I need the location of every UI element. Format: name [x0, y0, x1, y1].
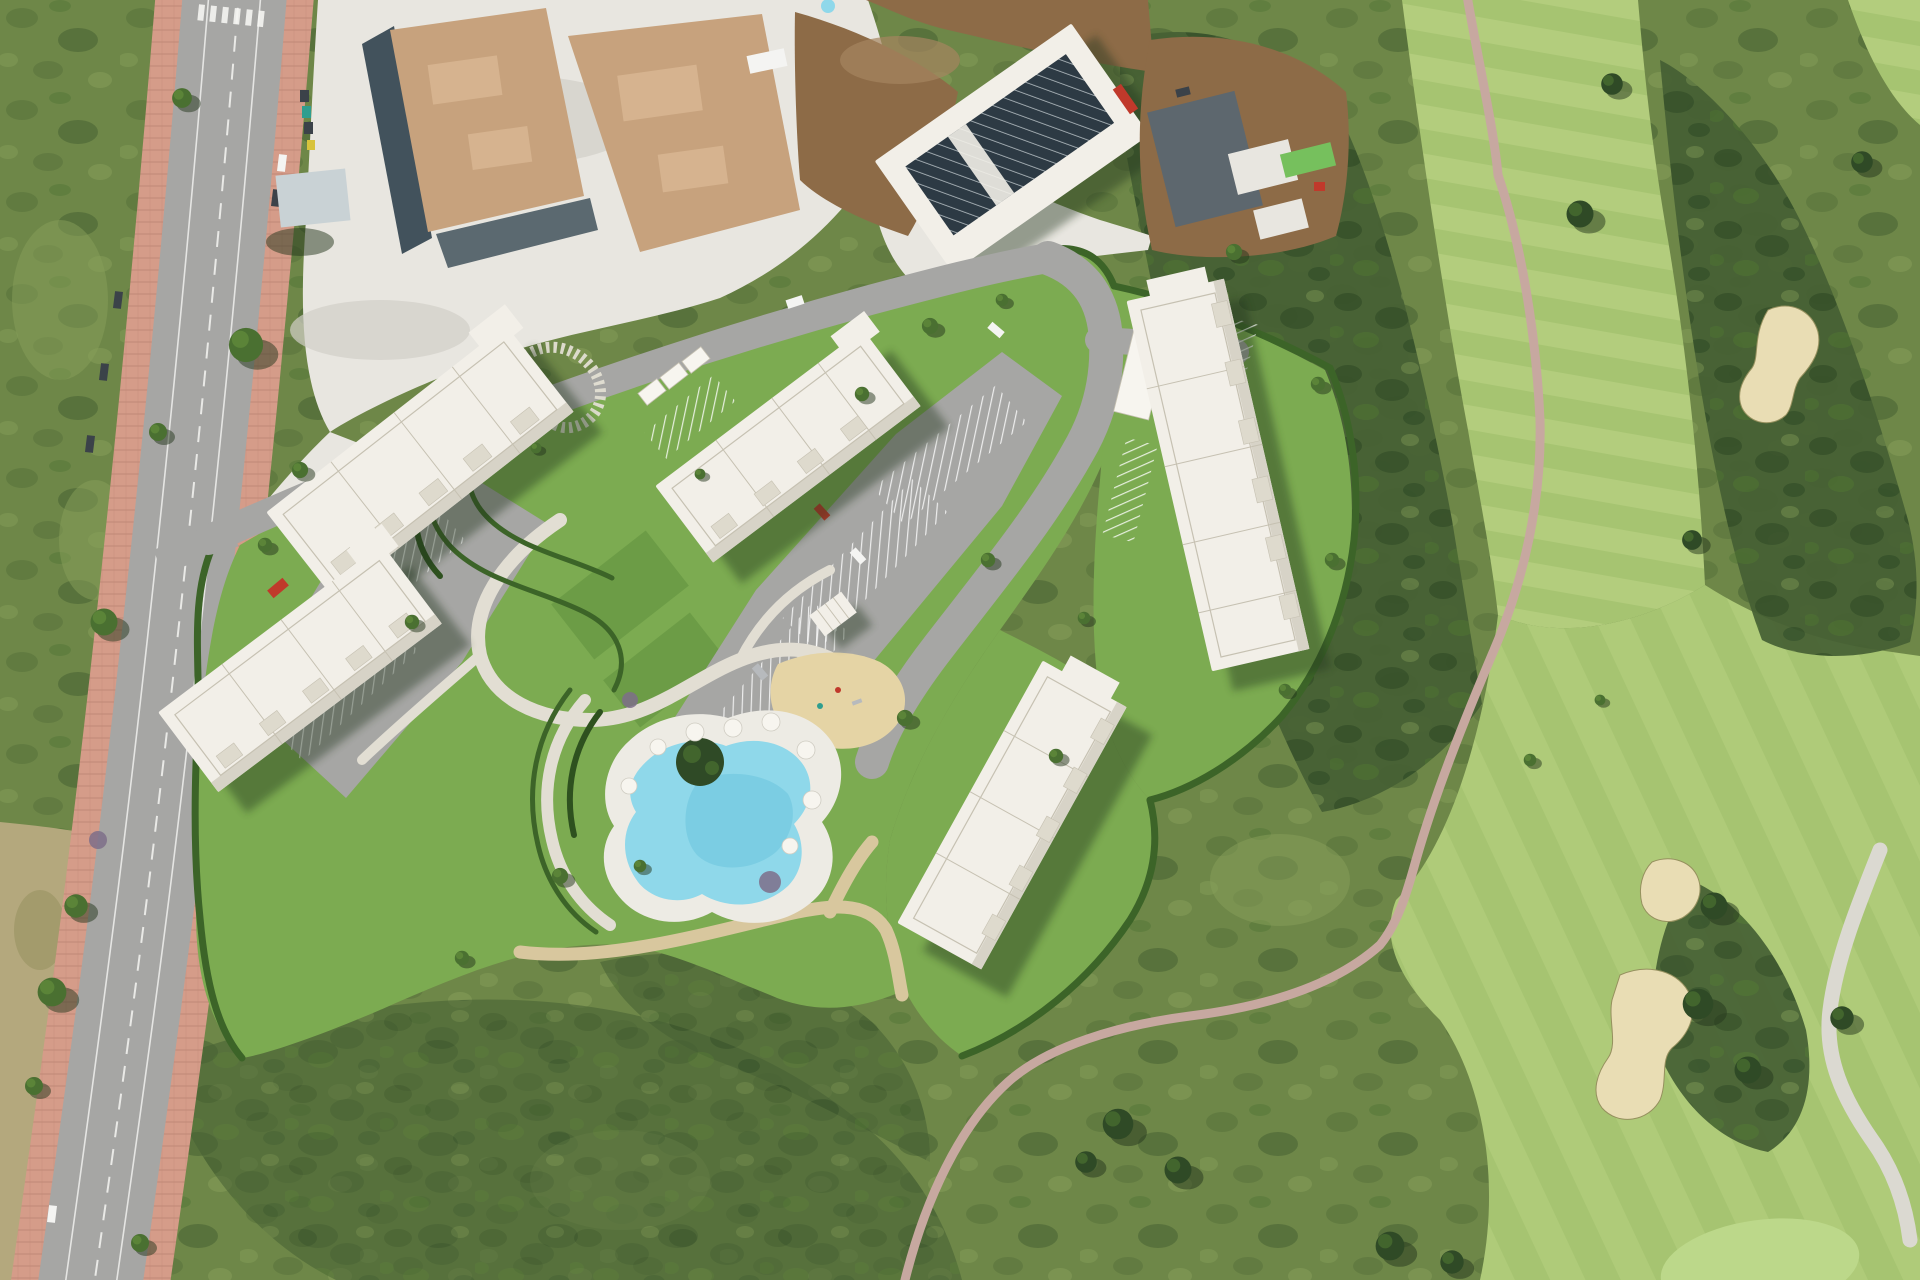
aerial-image	[0, 0, 1920, 1280]
parasol	[782, 838, 798, 854]
parasol	[762, 713, 780, 731]
flowering-bush	[622, 692, 638, 708]
pool-island-planter	[676, 738, 724, 786]
flowering-bush	[89, 831, 107, 849]
parasol	[621, 778, 637, 794]
screenshot-stage	[0, 0, 1920, 1280]
utility-shed	[275, 168, 350, 227]
parasol	[803, 791, 821, 809]
parasol	[797, 741, 815, 759]
parasol	[650, 739, 666, 755]
parasol	[724, 719, 742, 737]
shed-shadow	[266, 228, 334, 256]
parasol	[686, 723, 704, 741]
flowering-bush	[759, 871, 781, 893]
